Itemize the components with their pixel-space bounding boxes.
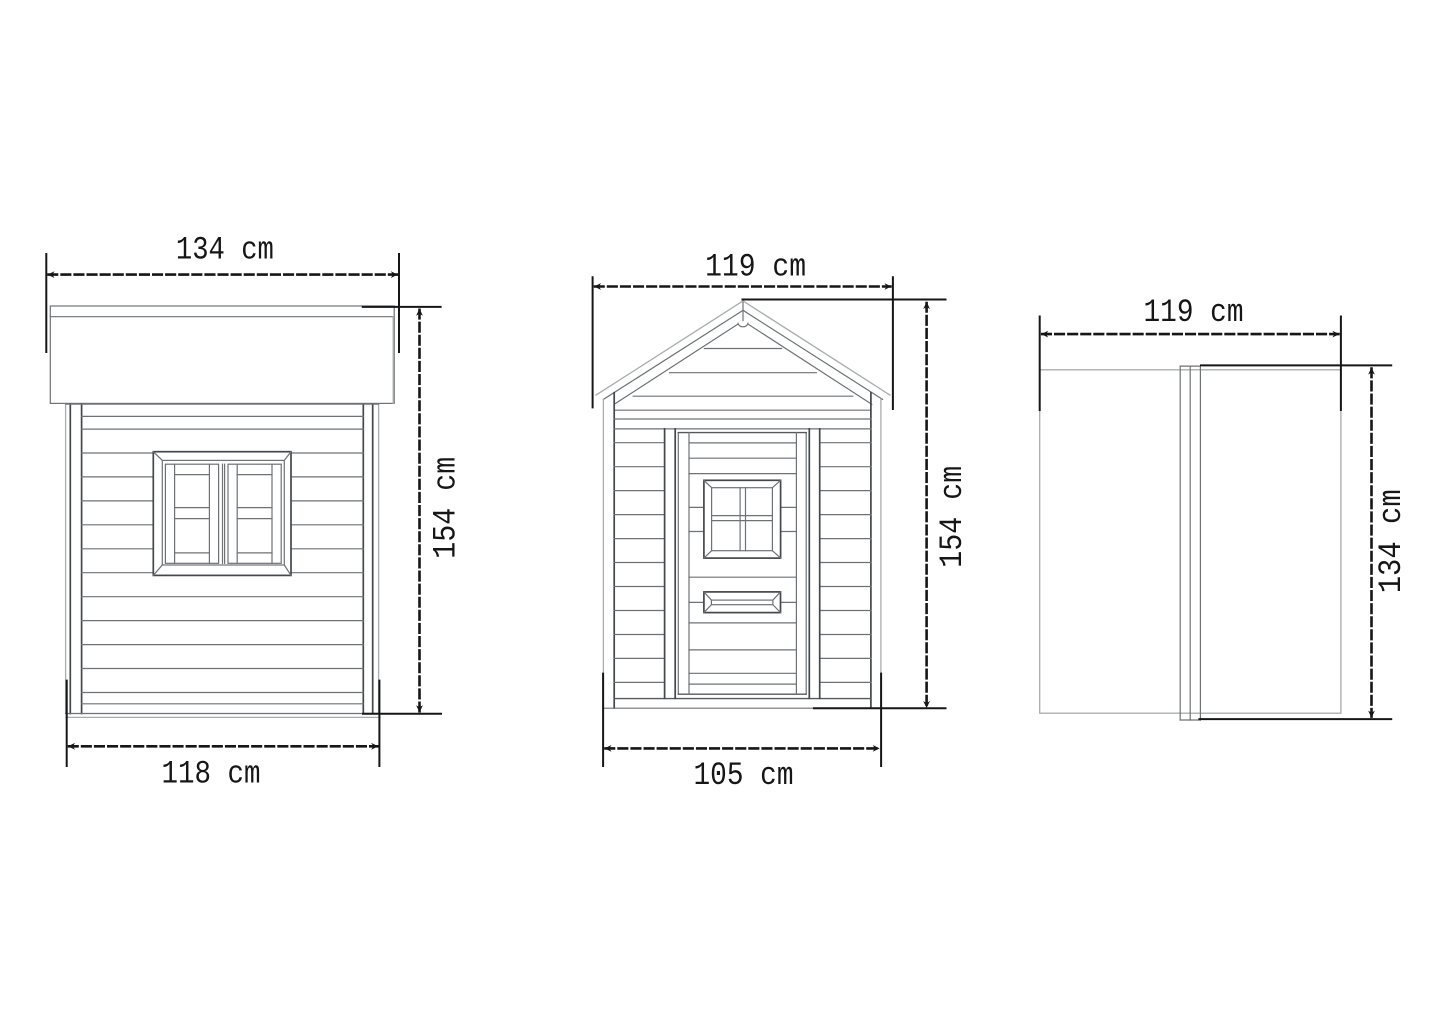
svg-text:154 cm: 154 cm <box>934 466 971 568</box>
svg-text:134 cm: 134 cm <box>176 232 274 269</box>
svg-text:119 cm: 119 cm <box>1144 294 1244 331</box>
svg-text:134 cm: 134 cm <box>1373 489 1410 593</box>
svg-text:118 cm: 118 cm <box>162 755 261 792</box>
svg-text:154 cm: 154 cm <box>428 457 465 559</box>
svg-text:119 cm: 119 cm <box>705 248 806 285</box>
svg-text:105 cm: 105 cm <box>694 757 794 794</box>
